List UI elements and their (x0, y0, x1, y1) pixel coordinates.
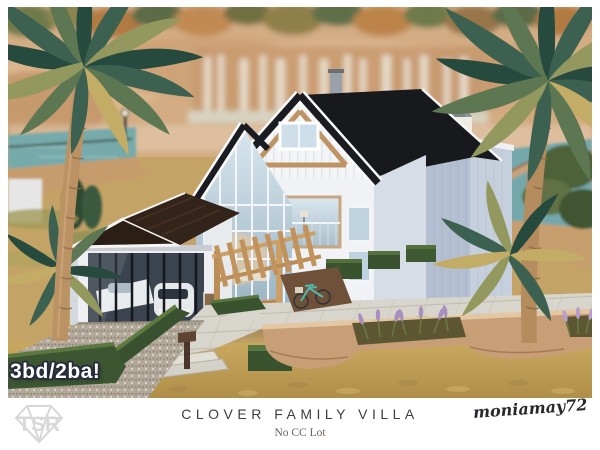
caption-band: TSR CLOVER FAMILY VILLA No CC Lot moniam… (0, 398, 600, 450)
roof-chimney (330, 71, 342, 95)
photo-subtitle: No CC Lot (0, 427, 600, 439)
bed-bath-badge: 3bd/2ba! (10, 360, 100, 384)
villa-photo (8, 7, 592, 398)
